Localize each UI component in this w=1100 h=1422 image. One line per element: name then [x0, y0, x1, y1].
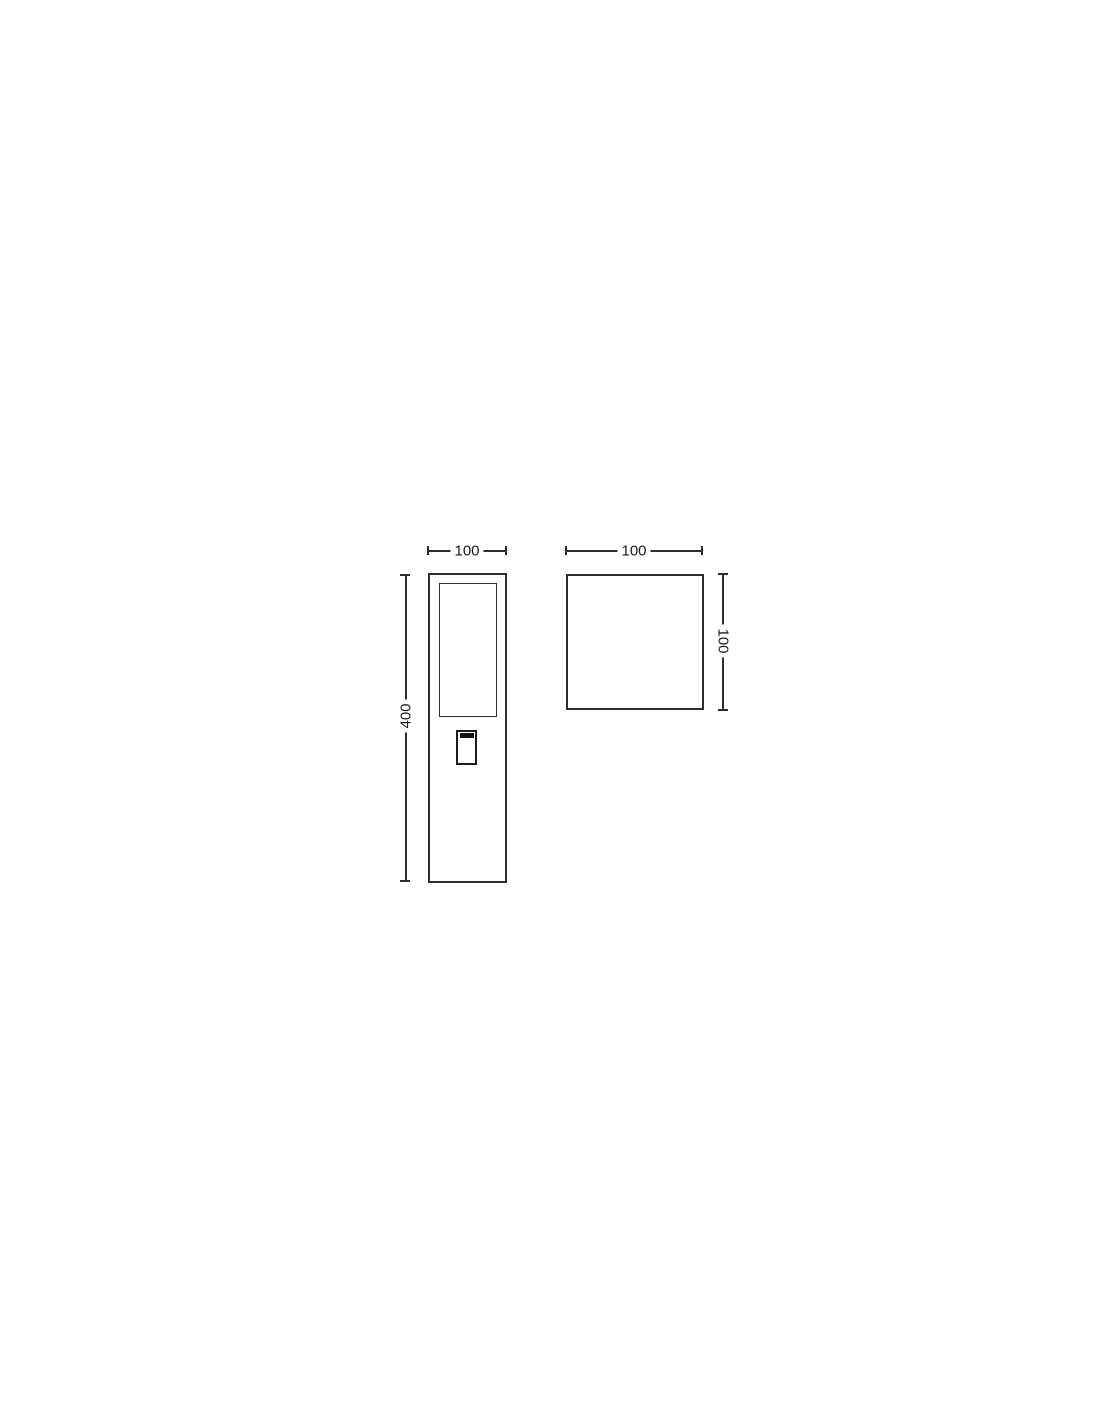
drawing-canvas: 100 400 100 100 [0, 0, 1100, 1422]
front-width-dim-label: 100 [450, 543, 483, 560]
front-height-dim-tick-top [400, 574, 410, 576]
front-width-dim-tick-left [427, 546, 429, 555]
top-width-dim-tick-left [565, 546, 567, 555]
top-depth-dim-tick-top [718, 573, 728, 575]
front-height-dim-tick-bottom [400, 880, 410, 882]
top-depth-dim-label: 100 [715, 624, 732, 657]
front-height-dim-label: 400 [398, 699, 415, 732]
top-depth-dim-tick-bottom [718, 709, 728, 711]
top-width-dim-tick-right [701, 546, 703, 555]
front-view-sensor-slot [460, 733, 474, 738]
front-view-light-panel-outline [439, 583, 497, 717]
top-width-dim-label: 100 [617, 543, 650, 560]
front-width-dim-tick-right [505, 546, 507, 555]
top-view-outline [566, 574, 704, 710]
